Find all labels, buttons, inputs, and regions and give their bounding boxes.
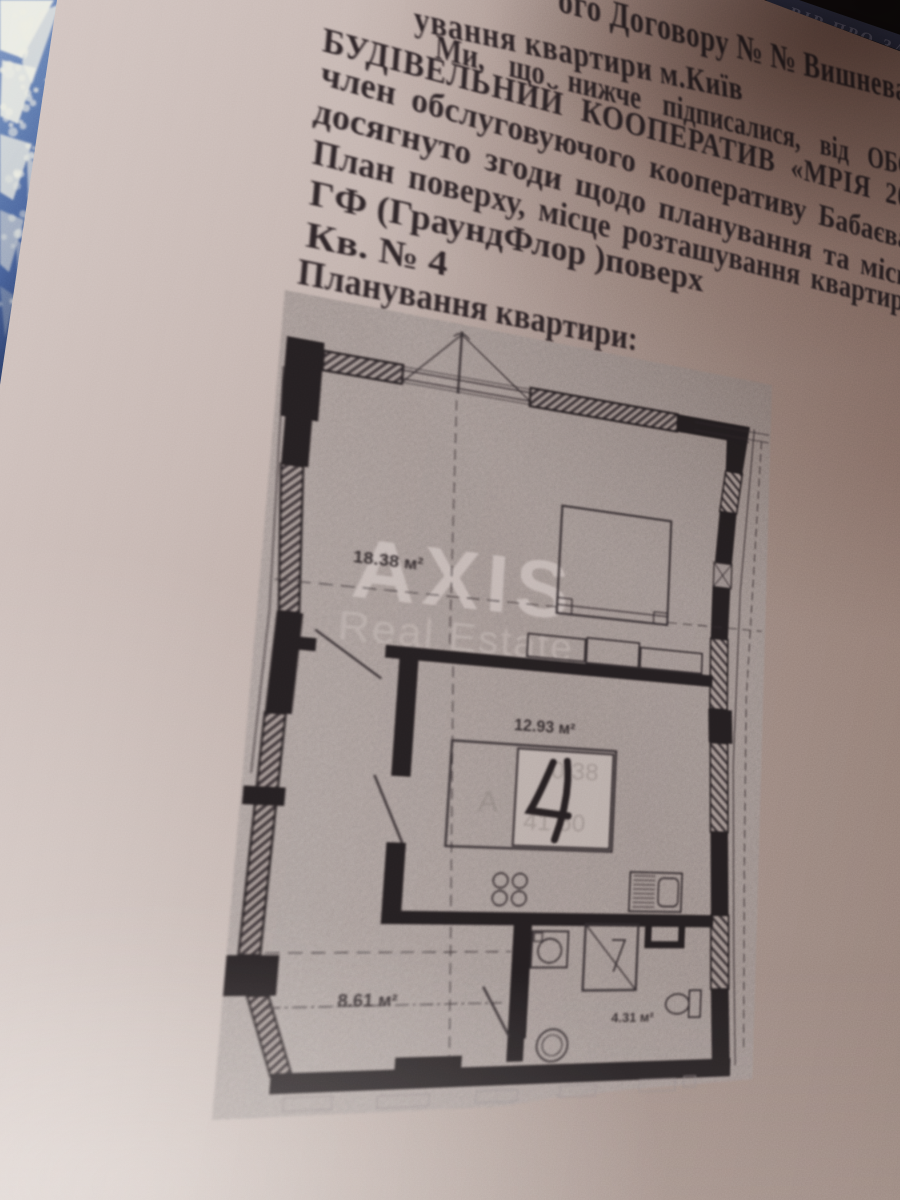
svg-text:А: А	[477, 784, 499, 818]
svg-text:8.61 м²: 8.61 м²	[337, 990, 399, 1011]
svg-text:0.38: 0.38	[550, 756, 599, 787]
svg-text:4.31 м²: 4.31 м²	[611, 1011, 654, 1027]
